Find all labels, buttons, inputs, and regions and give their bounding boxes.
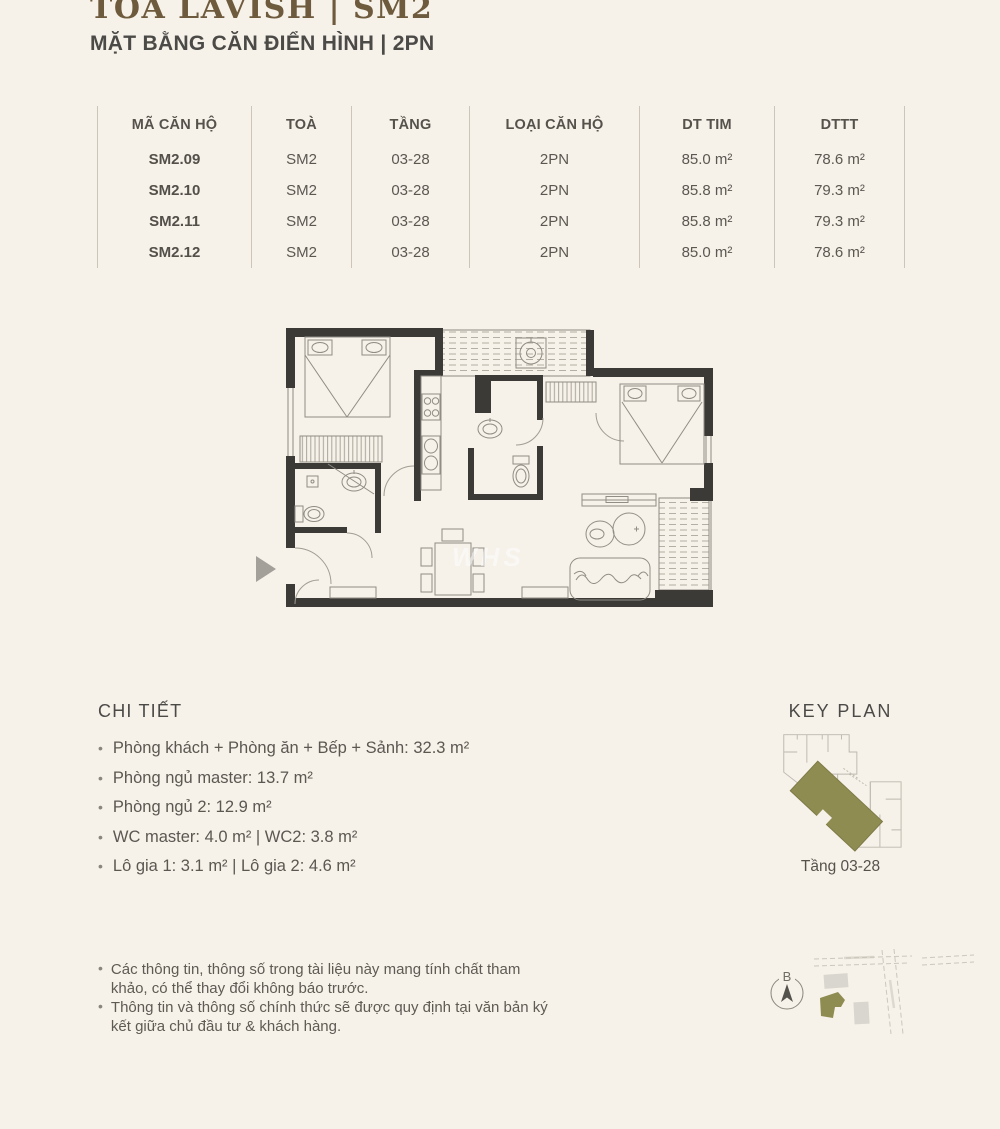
site-map — [810, 946, 980, 1041]
table-cell: 03-28 — [352, 237, 470, 268]
note-text: Các thông tin, thông số trong tài liệu n… — [111, 960, 560, 998]
keyplan-heading: KEY PLAN — [758, 701, 923, 722]
compass-label: B — [783, 969, 792, 984]
bullet-icon: • — [98, 858, 103, 875]
list-item: • Phòng ngủ 2: 12.9 m² — [98, 799, 578, 816]
list-item: • Phòng khách + Phòng ăn + Bếp + Sảnh: 3… — [98, 740, 578, 757]
keyplan-diagram — [778, 726, 903, 853]
wc2-fixtures — [295, 464, 374, 522]
floor-plan — [250, 318, 720, 618]
coffee-tables-icon — [586, 513, 645, 547]
table-cell: 2PN — [470, 237, 640, 268]
column-header: TẦNG — [352, 106, 470, 144]
table-cell: 03-28 — [352, 175, 470, 206]
dining-set-icon — [421, 529, 484, 595]
column-header: DTTT — [775, 106, 905, 144]
bullet-icon: • — [98, 998, 103, 1015]
wc-master-fixtures — [478, 418, 529, 487]
table-cell: 79.3 m² — [775, 206, 905, 237]
bullet-icon: • — [98, 799, 103, 816]
detail-text: Phòng ngủ master: 13.7 m² — [113, 770, 313, 787]
column-header: MÃ CĂN HỘ — [97, 106, 252, 144]
detail-text: Phòng ngủ 2: 12.9 m² — [113, 799, 272, 816]
bullet-icon: • — [98, 770, 103, 787]
table-cell: SM2.11 — [97, 206, 252, 237]
table-cell: 2PN — [470, 175, 640, 206]
tv-console-icon — [582, 494, 656, 506]
table-cell: SM2.10 — [97, 175, 252, 206]
detail-text: Phòng khách + Phòng ăn + Bếp + Sảnh: 32.… — [113, 740, 469, 757]
note-text: Thông tin và thông số chính thức sẽ được… — [111, 998, 560, 1036]
north-arrow-icon: B — [763, 960, 811, 1014]
table-cell: SM2 — [252, 237, 352, 268]
list-item: • Phòng ngủ master: 13.7 m² — [98, 770, 578, 787]
doormats — [330, 587, 568, 598]
detail-text: WC master: 4.0 m² | WC2: 3.8 m² — [113, 829, 357, 846]
wardrobe-2-icon — [300, 436, 382, 462]
kitchen-icon — [421, 376, 441, 490]
disclaimer-notes: • Các thông tin, thông số trong tài liệu… — [98, 960, 560, 1036]
details-heading: CHI TIẾT — [98, 701, 182, 722]
bullet-icon: • — [98, 740, 103, 757]
bullet-icon: • — [98, 829, 103, 846]
column-header: LOẠI CĂN HỘ — [470, 106, 640, 144]
details-list: • Phòng khách + Phòng ăn + Bếp + Sảnh: 3… — [98, 740, 578, 888]
table-cell: 03-28 — [352, 206, 470, 237]
page-title: TOÀ LAVISH | SM2 — [90, 0, 433, 26]
keyplan-highlight — [790, 761, 883, 852]
table-cell: 03-28 — [352, 144, 470, 175]
table-cell: SM2 — [252, 206, 352, 237]
table-cell: 85.8 m² — [640, 175, 775, 206]
table-cell: 2PN — [470, 144, 640, 175]
table-cell: SM2 — [252, 144, 352, 175]
street-label-marks — [844, 957, 894, 1008]
brochure-page: TOÀ LAVISH | SM2 MẶT BẰNG CĂN ĐIỂN HÌNH … — [0, 0, 1000, 1129]
list-item: • WC master: 4.0 m² | WC2: 3.8 m² — [98, 829, 578, 846]
column-header: DT TIM — [640, 106, 775, 144]
table-cell: 79.3 m² — [775, 175, 905, 206]
table-cell: 85.0 m² — [640, 144, 775, 175]
column-header: TOÀ — [252, 106, 352, 144]
entrance-arrow-icon — [256, 556, 276, 582]
balcony-1-loggia — [440, 330, 590, 376]
table-cell: SM2.12 — [97, 237, 252, 268]
wardrobe-master-icon — [546, 382, 596, 402]
page-subtitle: MẶT BẰNG CĂN ĐIỂN HÌNH | 2PN — [90, 32, 434, 56]
windows — [288, 376, 711, 590]
keyplan-caption: Tầng 03-28 — [758, 858, 923, 876]
table-cell: 2PN — [470, 206, 640, 237]
bed-master-icon — [620, 384, 704, 464]
table-cell: 85.8 m² — [640, 206, 775, 237]
units-table: MÃ CĂN HỘ TOÀ TẦNG LOẠI CĂN HỘ DT TIM DT… — [97, 106, 905, 268]
bed-2-icon — [305, 337, 390, 417]
list-item: • Lô gia 1: 3.1 m² | Lô gia 2: 4.6 m² — [98, 858, 578, 875]
table-cell: 78.6 m² — [775, 144, 905, 175]
note-item: • Các thông tin, thông số trong tài liệu… — [98, 960, 560, 998]
detail-text: Lô gia 1: 3.1 m² | Lô gia 2: 4.6 m² — [113, 858, 356, 875]
table-cell: SM2.09 — [97, 144, 252, 175]
bullet-icon: • — [98, 960, 103, 977]
table-cell: 85.0 m² — [640, 237, 775, 268]
balcony-2-loggia — [659, 498, 709, 590]
note-item: • Thông tin và thông số chính thức sẽ đư… — [98, 998, 560, 1036]
table-cell: SM2 — [252, 175, 352, 206]
sofa-icon — [570, 558, 650, 600]
table-cell: 78.6 m² — [775, 237, 905, 268]
site-highlight-building — [820, 992, 845, 1018]
